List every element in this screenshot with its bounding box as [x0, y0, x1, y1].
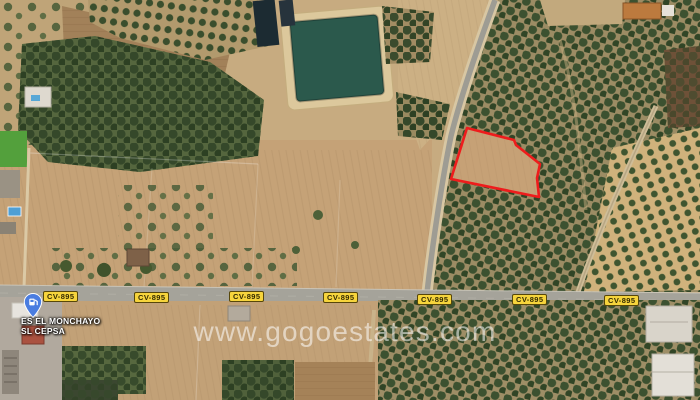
place-label: ES EL MONCHAYO SL CEPSA: [21, 317, 100, 336]
watermark: www.gogoestates.com: [194, 316, 497, 348]
fuel-pump-window: [30, 300, 33, 302]
place-label-line2: SL CEPSA: [21, 327, 100, 337]
road-badge-cv895: CV-895: [604, 295, 639, 306]
road-badge-cv895: CV-895: [512, 294, 547, 305]
road-badge-cv895: CV-895: [229, 291, 264, 302]
water-reservoir: [280, 6, 394, 111]
satellite-map-view[interactable]: CV-895 CV-895 CV-895 CV-895 CV-895 CV-89…: [0, 0, 700, 400]
road-badge-cv895: CV-895: [134, 292, 169, 303]
lower-fields: [0, 300, 700, 400]
road-badge-cv895: CV-895: [417, 294, 452, 305]
road-badge-cv895: CV-895: [43, 291, 78, 302]
road-badge-cv895: CV-895: [323, 292, 358, 303]
